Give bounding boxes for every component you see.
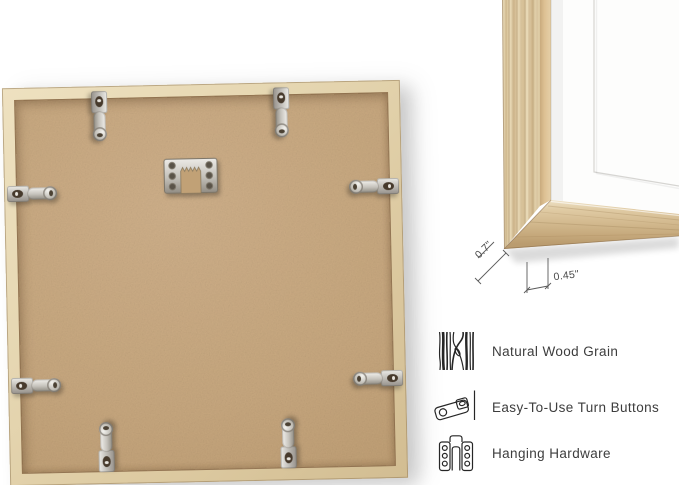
feature-label: Easy-To-Use Turn Buttons <box>492 400 659 415</box>
dimension-width-label: 0.7" <box>473 239 495 261</box>
sawtooth-notch <box>181 167 202 193</box>
turn-button-top-2 <box>273 87 290 139</box>
turn-button-left-2 <box>11 377 63 394</box>
sawtooth-hanger-hardware <box>163 158 218 195</box>
dimension-depth-label: 0.45" <box>553 268 580 283</box>
turn-button-right-1 <box>347 178 399 195</box>
hanging-hardware-icon <box>433 433 479 473</box>
feature-natural-wood-grain: Natural Wood Grain <box>433 330 618 372</box>
mdf-backing-board <box>14 92 396 474</box>
turn-button-right-2 <box>351 370 403 387</box>
wood-grain-icon <box>433 332 479 370</box>
turn-button-top-1 <box>91 91 108 143</box>
frame-back-photo <box>2 80 408 485</box>
turn-button-bottom-2 <box>280 416 297 468</box>
product-image-canvas: 0.7" 0.45" Natural Wood Grain <box>0 0 679 485</box>
feature-label: Natural Wood Grain <box>492 344 618 359</box>
corner-detail-view: 0.7" 0.45" <box>430 0 679 310</box>
turn-button-bottom-1 <box>98 420 115 472</box>
turn-button-icon <box>433 389 479 425</box>
feature-label: Hanging Hardware <box>492 446 611 461</box>
feature-turn-buttons: Easy-To-Use Turn Buttons <box>433 386 659 428</box>
turn-button-left-1 <box>7 185 59 202</box>
feature-hanging-hardware: Hanging Hardware <box>433 432 611 474</box>
mat-board <box>551 0 679 214</box>
backing-texture <box>15 93 395 473</box>
